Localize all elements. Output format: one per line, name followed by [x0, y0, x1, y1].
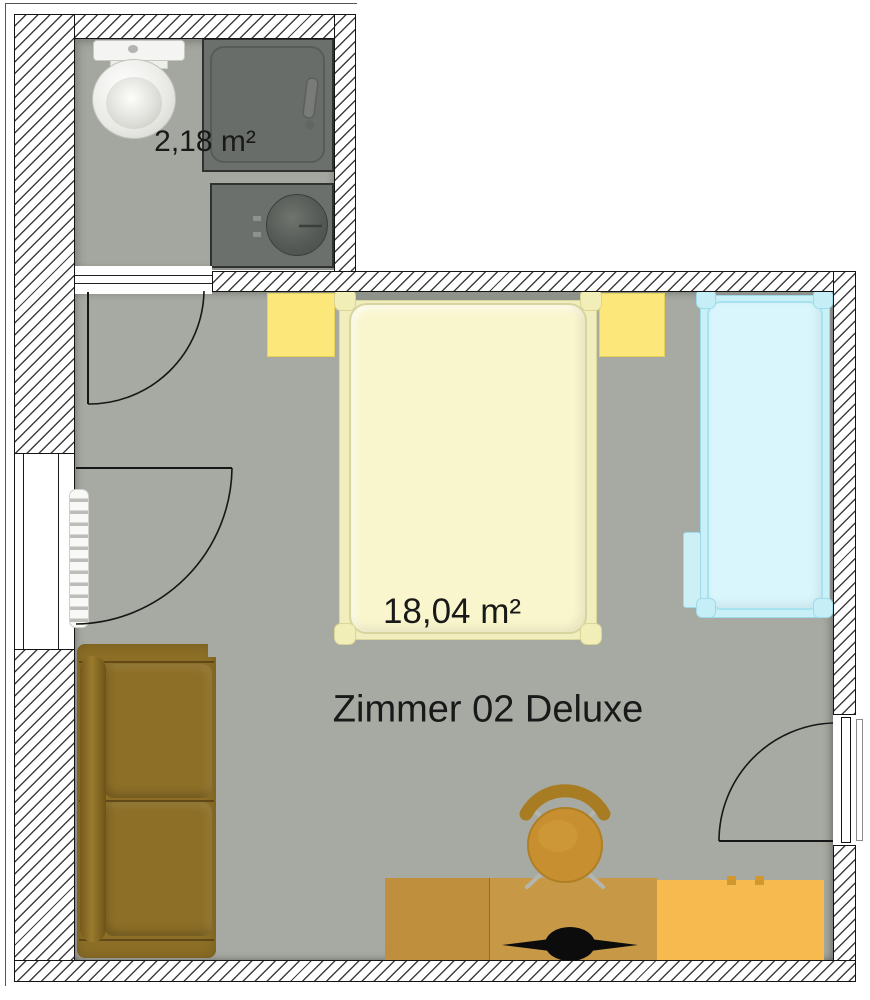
dresser [657, 880, 824, 961]
nightstand-right [599, 293, 665, 357]
room-name-label: Zimmer 02 Deluxe [333, 689, 643, 732]
entry-door-frame [841, 717, 851, 843]
wall-left-upper [14, 14, 75, 455]
toilet-tank [93, 40, 185, 61]
sink-basin [266, 194, 328, 256]
nightstand-left [267, 293, 335, 357]
window-frame-line [23, 454, 24, 649]
wall-bathroom-right [334, 14, 356, 292]
sofa-cushion [104, 664, 212, 798]
exterior-outline-top [5, 3, 357, 4]
threshold-line [75, 275, 212, 276]
threshold-line [75, 283, 212, 284]
wall-right-upper [833, 271, 856, 715]
floorplan-canvas: 2,18 m² 18,04 m² Zimmer 02 Deluxe [0, 0, 870, 1000]
double-bed-post [334, 289, 356, 311]
window-frame-line [58, 454, 59, 649]
sofa-cushion [104, 802, 212, 936]
single-bed-mattress [707, 301, 823, 610]
desk-left-section [385, 878, 489, 961]
sofa-backrest-bolster [80, 656, 106, 942]
balcony-window-opening [14, 453, 75, 650]
dresser-handle [727, 876, 736, 885]
room-area-label: 18,04 m² [383, 592, 521, 632]
wall-top-bedroom [212, 271, 856, 292]
bedside-table [683, 532, 701, 608]
single-bed-post [696, 289, 716, 309]
wall-bottom [14, 960, 856, 982]
single-bed-post [813, 598, 833, 618]
wall-left-lower [14, 648, 75, 982]
radiator [69, 489, 89, 628]
double-bed-post [580, 623, 602, 645]
double-bed-mattress [349, 303, 587, 634]
single-bed-post [813, 289, 833, 309]
double-bed-post [580, 289, 602, 311]
toilet-bowl-inner [106, 77, 162, 129]
sofa-step [208, 644, 217, 657]
dresser-handle [755, 876, 764, 885]
toilet-button [128, 45, 138, 53]
entry-door-sill [856, 719, 863, 841]
bathroom-area-label: 2,18 m² [154, 125, 256, 159]
bathroom-door-opening [75, 266, 212, 294]
double-bed-post [334, 623, 356, 645]
single-bed-post [696, 598, 716, 618]
desk-right-section [489, 878, 657, 961]
exterior-outline-left [5, 3, 6, 986]
